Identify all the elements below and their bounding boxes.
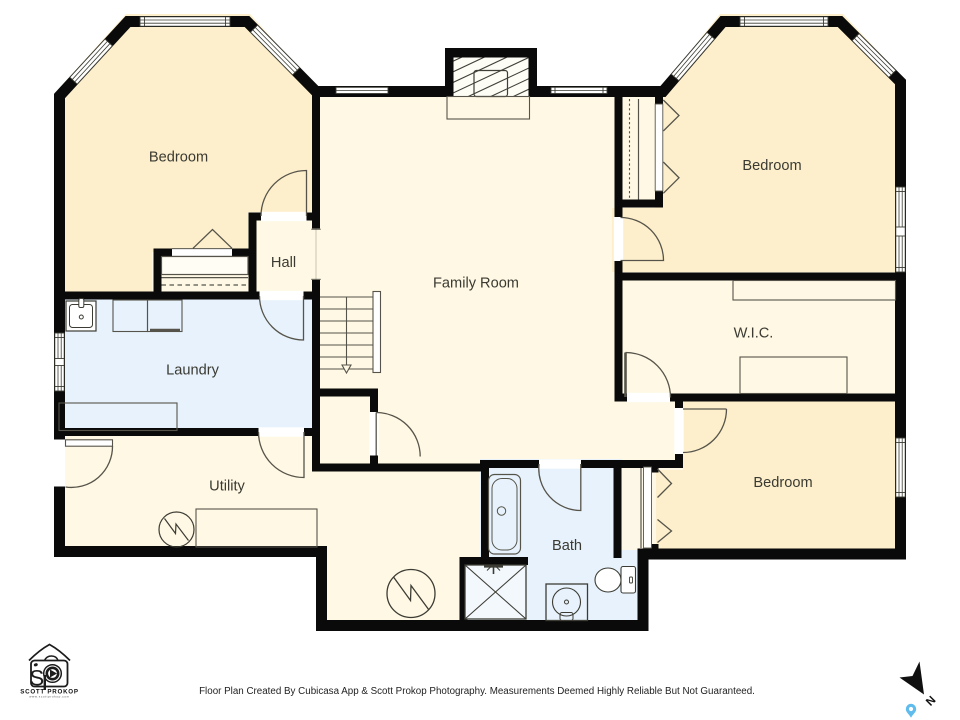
svg-text:Bath: Bath	[552, 538, 582, 554]
svg-text:Bedroom: Bedroom	[742, 158, 801, 174]
svg-text:Family Room: Family Room	[433, 276, 519, 292]
svg-text:www.scottprokop.com: www.scottprokop.com	[29, 695, 70, 699]
svg-text:W.I.C.: W.I.C.	[734, 326, 774, 342]
svg-text:Floor Plan Created By Cubicasa: Floor Plan Created By Cubicasa App & Sco…	[199, 686, 755, 697]
svg-text:Hall: Hall	[271, 255, 296, 271]
svg-text:Bedroom: Bedroom	[753, 475, 812, 491]
svg-text:Laundry: Laundry	[166, 363, 219, 379]
svg-text:S: S	[30, 666, 45, 691]
svg-text:Bedroom: Bedroom	[149, 150, 208, 166]
svg-text:Utility: Utility	[209, 479, 245, 495]
